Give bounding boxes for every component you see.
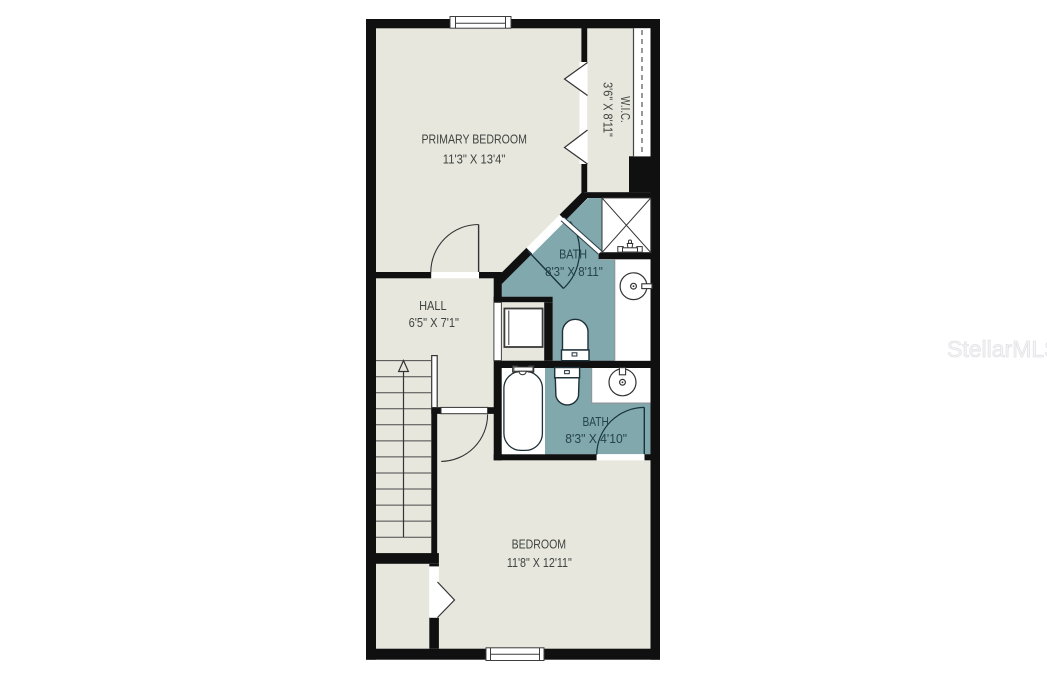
svg-text:BEDROOM: BEDROOM <box>512 537 566 552</box>
svg-text:8'3" X 4'10": 8'3" X 4'10" <box>565 431 627 446</box>
svg-text:HALL: HALL <box>419 298 447 313</box>
svg-text:BATH: BATH <box>583 414 609 429</box>
svg-text:BATH: BATH <box>559 246 587 261</box>
svg-text:PRIMARY BEDROOM: PRIMARY BEDROOM <box>422 132 527 147</box>
svg-text:StellarMLS: StellarMLS <box>947 336 1047 362</box>
svg-text:11'3" X 13'4": 11'3" X 13'4" <box>443 152 506 167</box>
svg-text:8'3" X 8'11": 8'3" X 8'11" <box>545 264 603 279</box>
svg-text:6'5" X 7'1": 6'5" X 7'1" <box>409 315 460 330</box>
svg-text:3'6" X 8'11": 3'6" X 8'11" <box>601 82 616 137</box>
svg-text:W.I.C.: W.I.C. <box>618 96 633 122</box>
svg-text:11'8" X 12'11": 11'8" X 12'11" <box>507 555 572 570</box>
